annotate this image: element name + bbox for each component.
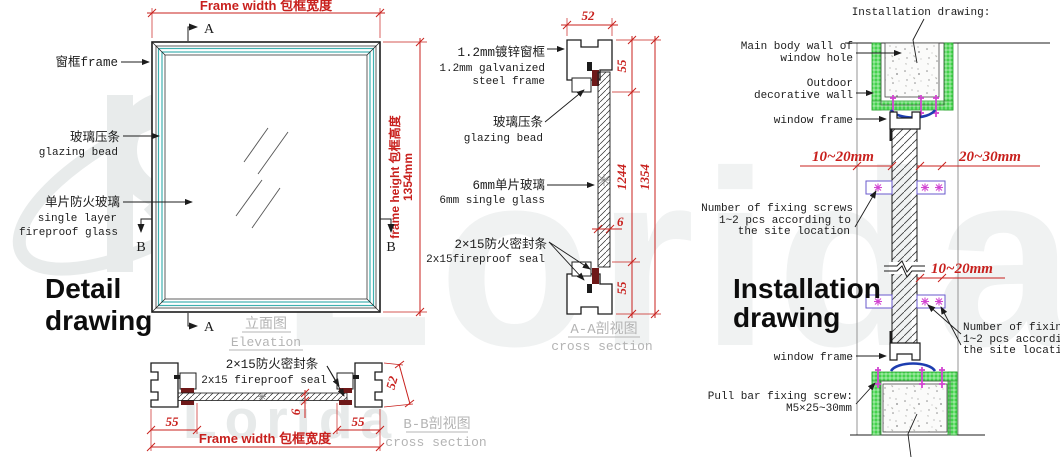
top-wall-concrete <box>885 43 939 97</box>
label-pull-bar-2: M5×25~30mm <box>786 403 852 415</box>
aa-dim-52-text: 52 <box>582 8 596 23</box>
section-marker-a-bottom: A <box>188 313 215 335</box>
bb-seal-label-cn: 2×15防火密封条 <box>226 356 319 372</box>
dim-frame-width-top: Frame width 包框宽度 <box>147 0 385 38</box>
label-glazing-bead-en: glazing bead <box>39 147 118 159</box>
aa-label-steel-en2: steel frame <box>472 76 545 88</box>
technical-drawing-canvas: Lorida Lorida Frame <box>0 0 1060 457</box>
aa-caption-cn: A-A剖视图 <box>570 321 637 338</box>
bb-dim-55-right: 55 <box>352 414 366 429</box>
installation-title-line2: drawing <box>733 302 840 333</box>
aa-label-glazing-cn: 玻璃压条 <box>493 115 544 130</box>
bb-seal-label-en: 2x15 fireproof seal <box>201 375 326 387</box>
aa-bottom-glazing-bead <box>572 262 591 276</box>
bottom-wall <box>872 367 957 435</box>
aa-label-glazing-en: glazing bead <box>464 133 543 145</box>
aa-bottom-seal <box>592 268 599 284</box>
bb-glass-center-mark <box>258 393 266 400</box>
label-install-window-frame-top: window frame <box>774 115 853 127</box>
marker-a-top-label: A <box>204 22 215 37</box>
detail-title-line2: drawing <box>45 305 152 336</box>
bb-dim-55-left: 55 <box>166 414 180 429</box>
bb-right-seal-bottom <box>339 400 352 405</box>
bb-right-glazing-bead <box>337 373 353 389</box>
marker-b-right-label: B <box>386 240 395 255</box>
label-screws-right-1: Number of fixing screws <box>963 322 1060 334</box>
label-fireproof-glass-cn: 单片防火玻璃 <box>45 194 120 210</box>
technical-drawing-page: Lorida Lorida Frame <box>0 0 1060 457</box>
marker-b-left-label: B <box>136 240 145 255</box>
label-glazing-bead-cn: 玻璃压条 <box>70 130 121 145</box>
aa-label-steel-cn: 1.2mm镀锌窗框 <box>457 44 545 60</box>
detail-title-line1: Detail <box>45 273 121 304</box>
frame-height-value: 1354mm <box>401 153 415 201</box>
section-marker-a-top: A <box>188 22 215 41</box>
top-wall <box>872 43 953 118</box>
frame-height-label: frame height 包框高度 <box>387 114 402 238</box>
elevation-caption-en: Elevation <box>231 335 301 350</box>
dim-gap-left: 10~20mm <box>812 149 874 165</box>
aa-label-glass-en: 6mm single glass <box>439 195 545 207</box>
aa-dim-55-bottom: 55 <box>614 281 629 295</box>
bb-caption-cn: B-B剖视图 <box>403 416 470 433</box>
aa-callout-steel-frame: 1.2mm镀锌窗框 1.2mm galvanized steel frame <box>439 44 564 88</box>
label-install-window-frame-bottom: window frame <box>774 352 853 364</box>
dim-gap-lower: 10~20mm <box>931 261 993 277</box>
window-frame-outline <box>152 42 380 312</box>
aa-label-glass-cn: 6mm单片玻璃 <box>472 178 545 193</box>
label-screws-right-3: the site location <box>963 345 1060 357</box>
label-outdoor-wall-1: Outdoor <box>807 78 853 90</box>
aa-dim-6: 6 <box>617 214 624 229</box>
dim-gap-right: 20~30mm <box>958 149 1021 165</box>
label-main-body-wall-1: Main body wall of <box>741 41 853 53</box>
label-fireproof-glass-en1: single layer <box>38 213 117 225</box>
callout-glazing-bead: 玻璃压条 glazing bead <box>39 130 159 159</box>
label-screws-left-1: Number of fixing screws <box>701 203 853 215</box>
aa-label-seal-cn: 2×15防火密封条 <box>454 236 547 252</box>
install-frame-top <box>890 112 920 129</box>
bottom-wall-concrete <box>883 384 947 432</box>
bb-left-seal-top <box>181 388 194 393</box>
aa-dim-55-top: 55 <box>614 59 629 73</box>
bb-left-glazing-bead <box>180 373 196 389</box>
elevation-caption-cn: 立面图 <box>245 316 287 333</box>
label-window-frame: 窗框frame <box>55 55 118 70</box>
callout-window-frame: 窗框frame <box>55 55 149 70</box>
aa-glass <box>598 72 610 267</box>
label-screws-left-3: the site location <box>738 226 850 238</box>
bb-dim-6: 6 <box>288 408 303 415</box>
label-fireproof-glass-en2: fireproof glass <box>19 227 118 239</box>
label-outdoor-wall-2: decorative wall <box>754 90 853 102</box>
callout-outdoor-wall: Outdoor decorative wall <box>754 78 873 102</box>
aa-label-steel-en1: 1.2mm galvanized <box>439 63 545 75</box>
label-main-body-wall-2: window hole <box>780 53 853 65</box>
label-pull-bar-1: Pull bar fixing screw: <box>708 391 853 403</box>
install-frame-bar <box>892 129 917 343</box>
installation-header: Installation drawing: <box>852 7 991 19</box>
aa-top-glazing-bead <box>572 78 591 92</box>
elevation-view: Frame width 包框宽度 frame height 包框高度 1354m… <box>19 0 427 350</box>
aa-caption-en: cross section <box>551 339 652 354</box>
installation-title-line1: Installation <box>733 273 881 304</box>
aa-dim-1244: 1244 <box>614 164 629 191</box>
marker-a-bottom-label: A <box>204 320 215 335</box>
frame-width-label: Frame width 包框宽度 <box>200 0 333 13</box>
bb-caption-en: cross section <box>385 435 486 450</box>
aa-dim-1354: 1354 <box>637 164 652 191</box>
bb-left-frame-profile <box>151 363 178 407</box>
aa-label-seal-en: 2x15fireproof seal <box>426 254 545 266</box>
aa-dim-52: 52 <box>561 8 618 36</box>
bb-frame-width-label: Frame width 包框宽度 <box>199 431 332 446</box>
bb-right-frame-profile <box>355 363 382 407</box>
